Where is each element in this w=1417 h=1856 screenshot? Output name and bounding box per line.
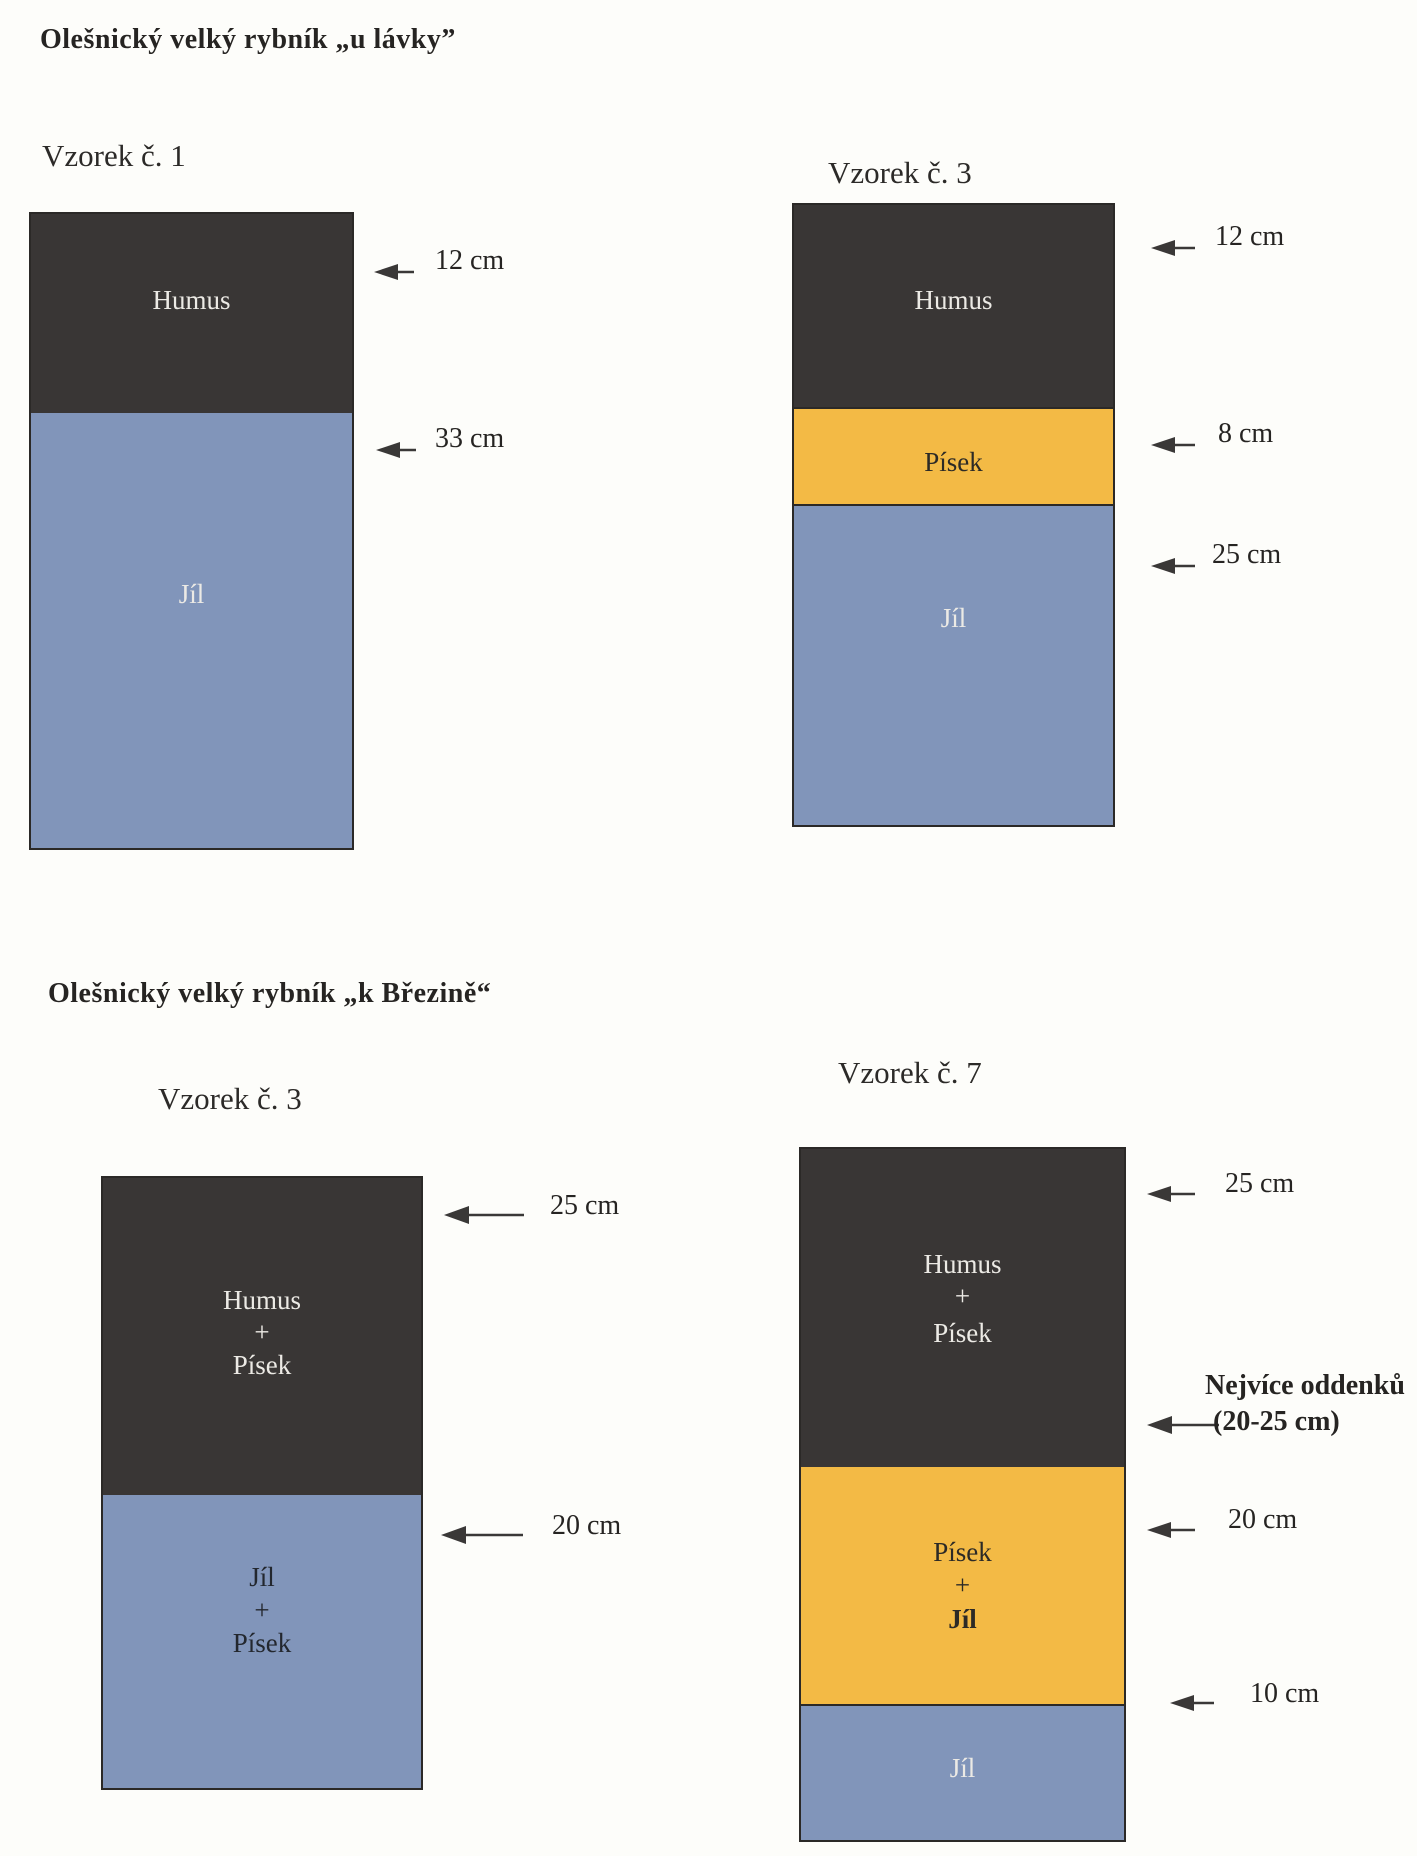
left-arrow-icon xyxy=(375,439,417,461)
layer-pisek: Písek xyxy=(794,407,1113,506)
layer-humus: Humus xyxy=(31,214,352,413)
layer-label-plus: + xyxy=(103,1317,421,1347)
layer-label-pisek: Písek xyxy=(801,1318,1124,1348)
scanned-page: Olešnický velký rybník „u lávky” Vzorek … xyxy=(0,0,1417,1856)
layer-label-humus: Humus xyxy=(103,1285,421,1315)
depth-label-12cm: 12 cm xyxy=(1215,221,1284,253)
left-arrow-icon xyxy=(1169,1692,1215,1714)
depth-label-33cm: 33 cm xyxy=(435,423,504,455)
left-arrow-icon xyxy=(443,1204,525,1226)
depth-label-12cm: 12 cm xyxy=(435,245,504,277)
layer-label-pisek: Písek xyxy=(103,1350,421,1380)
section-title-k-brezine: Olešnický velký rybník „k Březině“ xyxy=(48,978,491,1010)
layer-pisek-jil: Písek + Jíl xyxy=(801,1467,1124,1706)
depth-label-25cm: 25 cm xyxy=(1225,1168,1294,1200)
depth-label-25cm: 25 cm xyxy=(1212,539,1281,571)
soil-column-vzorek-3-top: Humus Písek Jíl xyxy=(792,203,1115,827)
soil-column-vzorek-7: Humus + Písek Písek + Jíl Jíl xyxy=(799,1147,1126,1842)
layer-label-jil: Jíl xyxy=(103,1562,421,1592)
note-20-25cm: (20-25 cm) xyxy=(1213,1406,1340,1438)
diagram-title-vzorek-1: Vzorek č. 1 xyxy=(42,138,186,174)
diagram-title-vzorek-3-bottom: Vzorek č. 3 xyxy=(158,1081,302,1117)
layer-label-jil: Jíl xyxy=(794,603,1113,633)
layer-jil: Jíl xyxy=(794,506,1113,825)
layer-humus-pisek: Humus + Písek xyxy=(801,1149,1124,1467)
layer-label-jil: Jíl xyxy=(801,1753,1124,1783)
layer-label-plus: + xyxy=(801,1281,1124,1311)
left-arrow-icon xyxy=(1146,1183,1196,1205)
left-arrow-icon xyxy=(1146,1414,1220,1436)
layer-label-pisek: Písek xyxy=(794,447,1113,477)
layer-label-humus: Humus xyxy=(31,285,352,315)
depth-label-20cm: 20 cm xyxy=(1228,1504,1297,1536)
layer-label-pisek: Písek xyxy=(801,1537,1124,1567)
left-arrow-icon xyxy=(373,261,415,283)
depth-label-8cm: 8 cm xyxy=(1218,418,1273,450)
left-arrow-icon xyxy=(1150,555,1196,577)
layer-humus: Humus xyxy=(794,205,1113,407)
left-arrow-icon xyxy=(1146,1519,1196,1541)
layer-label-jil: Jíl xyxy=(801,1604,1124,1634)
section-title-u-lavky: Olešnický velký rybník „u lávky” xyxy=(40,24,456,56)
diagram-title-vzorek-3-top: Vzorek č. 3 xyxy=(828,155,972,191)
depth-label-10cm: 10 cm xyxy=(1250,1678,1319,1710)
left-arrow-icon xyxy=(1150,237,1196,259)
left-arrow-icon xyxy=(1150,434,1196,456)
layer-label-plus: + xyxy=(103,1595,421,1625)
layer-humus-pisek: Humus + Písek xyxy=(103,1178,421,1495)
layer-label-jil: Jíl xyxy=(31,579,352,609)
layer-label-pisek: Písek xyxy=(103,1628,421,1658)
layer-label-plus: + xyxy=(801,1570,1124,1600)
left-arrow-icon xyxy=(440,1524,524,1546)
layer-label-humus: Humus xyxy=(794,285,1113,315)
layer-jil-pisek: Jíl + Písek xyxy=(103,1495,421,1788)
soil-column-vzorek-1: Humus Jíl xyxy=(29,212,354,850)
soil-column-vzorek-3-bottom: Humus + Písek Jíl + Písek xyxy=(101,1176,423,1790)
layer-jil: Jíl xyxy=(801,1706,1124,1840)
depth-label-20cm: 20 cm xyxy=(552,1510,621,1542)
depth-label-25cm: 25 cm xyxy=(550,1190,619,1222)
layer-label-humus: Humus xyxy=(801,1249,1124,1279)
diagram-title-vzorek-7: Vzorek č. 7 xyxy=(838,1055,982,1091)
note-nejvice-oddenku: Nejvíce oddenků xyxy=(1205,1370,1405,1402)
layer-jil: Jíl xyxy=(31,413,352,848)
